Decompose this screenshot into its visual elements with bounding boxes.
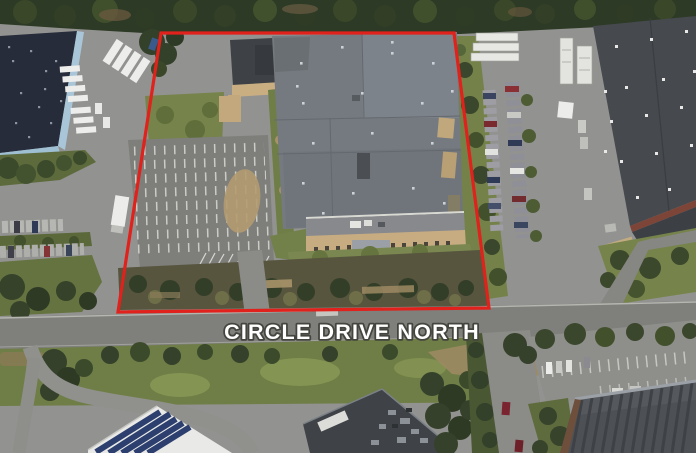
bottom-right-area: [466, 320, 696, 453]
aerial-scene-canvas: CIRCLE DRIVE NORTH: [0, 0, 696, 453]
road-name-label: CIRCLE DRIVE NORTH: [224, 320, 480, 344]
aerial-photo: CIRCLE DRIVE NORTH: [0, 0, 696, 453]
main-warehouse-roof: [272, 32, 463, 229]
